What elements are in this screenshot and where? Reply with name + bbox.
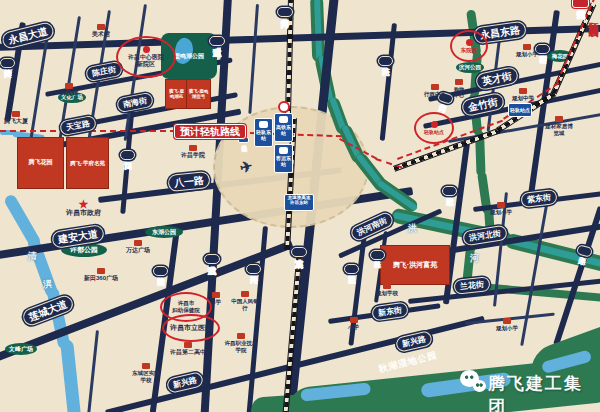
- poi-city-government: ★许昌市政府: [66, 199, 101, 217]
- project-block-honghe: 腾飞·洪河富苑: [380, 245, 450, 285]
- poi-label: 许昌市政府: [66, 209, 101, 216]
- road-label-songyuan-south: 松苑路: [370, 250, 385, 260]
- poi-label: 规划小学: [516, 51, 538, 57]
- road-label-zidong: 紫东街: [520, 189, 558, 208]
- poi-planned-middle: 规划中学: [512, 88, 534, 102]
- school-icon: [503, 318, 511, 324]
- school-icon: [523, 44, 531, 50]
- poi-label: 万达广场: [126, 247, 150, 253]
- poi-label: 东城区实验学校: [132, 370, 160, 383]
- bus-east-station-sign: 客运东站: [274, 144, 293, 173]
- sign-text: 客运东站: [276, 155, 291, 167]
- road-label-zhongwu: 忠武路: [442, 186, 457, 196]
- poi-label: 腾飞大厦: [4, 118, 28, 124]
- shili-hospital-highlight: 许昌市立医院: [162, 314, 220, 342]
- building-icon: [555, 116, 563, 122]
- poi-shopping-center: 购物中心: [452, 79, 466, 98]
- poi-label: 规划小学: [490, 209, 512, 215]
- hsr-east-station-sign: 高铁东站: [274, 113, 293, 142]
- park-wenfeng-square: 文峰广场: [5, 343, 37, 355]
- poi-label: 许昌职业技术学院: [225, 340, 258, 353]
- poi-art-museum: 美术馆: [92, 24, 110, 38]
- poi-experimental-school: 东城区实验学校: [132, 363, 160, 383]
- poi-pboc: 中国人民银行: [230, 291, 260, 311]
- lrt-east-station-sign: 轻轨东站: [254, 118, 273, 147]
- bus-icon: [279, 147, 288, 154]
- building-icon: [189, 145, 197, 151]
- wetland-park-label: 秋湖湿地公园: [377, 349, 438, 376]
- qingyi-river: [60, 339, 81, 412]
- poi-label: 行政中心: [424, 91, 446, 97]
- road-label-weiwen: 魏文路: [120, 150, 135, 160]
- poi-no2-high-school: 许昌第二高中: [170, 342, 206, 356]
- expressway-entry-sign: 京港澳高速 许昌东站: [284, 194, 314, 211]
- lrt-stop-highlight: 轻轨站点: [414, 112, 454, 144]
- building-icon: [431, 84, 439, 90]
- brand-watermark: 腾飞建工集团: [488, 372, 600, 412]
- hospital-icon: [466, 39, 473, 46]
- poi-xintian360: 新田360广场: [84, 268, 118, 282]
- poi-label: 购物中心: [454, 86, 464, 98]
- building-icon: [134, 240, 142, 246]
- poi-xuchang-university: 许昌学院: [181, 145, 205, 159]
- poi-wanda-plaza: 万达广场: [126, 240, 150, 254]
- city-map-canvas: 鹿鸣湖公园 许都公园 东湖公园 文化广场 文峰广场 滨河公园 梅花园 秋湖湿地公…: [0, 0, 600, 412]
- road-label-jinggangao: 京港澳高速: [291, 247, 307, 257]
- poi-admin-center: 行政中心: [424, 84, 446, 98]
- school-icon: [142, 363, 150, 369]
- project-block-luming-a: 腾飞·鹿鸣湖苑: [165, 79, 188, 109]
- school-icon: [519, 88, 527, 94]
- building-icon: [97, 268, 105, 274]
- river-label-char: 潩: [43, 278, 52, 291]
- highlight-text: 许昌市立医院: [170, 324, 212, 333]
- poi-science-hall: 科技馆: [60, 83, 78, 97]
- minor-road: [87, 330, 99, 412]
- light-rail-banner-side: 预计轻轨路线: [586, 14, 600, 20]
- project-block-luming-b: 腾飞·鹿鸣湖壹号: [186, 79, 211, 109]
- road-label-yulan: 玉兰路: [344, 264, 359, 274]
- poi-label: 规划中学: [512, 95, 534, 101]
- metro-icon: [259, 121, 268, 128]
- road-label-songyuan-north: 松苑路: [378, 56, 393, 66]
- school-icon: [237, 333, 245, 339]
- sign-text: 许昌东站: [285, 200, 313, 205]
- road-label-wenfeng: 文峰路: [0, 58, 15, 68]
- building-icon: [65, 83, 73, 89]
- poi-planned-primary-2: 规划小学: [490, 202, 512, 216]
- park-label: 鹿鸣湖公园: [174, 52, 204, 61]
- poi-expo-city: 建材家居博览城: [544, 116, 574, 136]
- river-label-char: 洪: [408, 222, 417, 235]
- school-icon: [383, 283, 391, 289]
- hsr-marker-icon: [278, 101, 290, 113]
- station-icon: [431, 121, 438, 128]
- school-icon: [497, 202, 505, 208]
- train-icon: [279, 116, 288, 123]
- poi-label: 新田360广场: [84, 275, 118, 281]
- road-label-xuzhou: 许州路: [246, 264, 261, 274]
- poi-label: 许昌学院: [181, 152, 205, 158]
- road-label-xinxing-east: 新兴路: [395, 330, 433, 353]
- poi-label: 小学: [348, 324, 359, 330]
- center-hospital-highlight: 许昌中心医院 新院区: [116, 36, 176, 78]
- road-label-xueyuan: 学院路: [153, 266, 168, 276]
- highlight-text: 轻轨站点: [424, 129, 444, 135]
- project-block-xuefu: 腾飞·学府名苑: [66, 137, 109, 189]
- highlight-text: 新院区: [137, 61, 155, 69]
- wechat-icon: [473, 380, 486, 392]
- poi-planned-school: 规划学校: [376, 283, 398, 297]
- light-rail-banner: 预计轻轨路线: [174, 124, 246, 139]
- road-label-weiwu-south: 魏武大道: [204, 254, 220, 264]
- highlight-text: 许昌中心医院: [128, 54, 164, 62]
- rail-label-zhengzhou-north: 郑州方向: [277, 7, 293, 17]
- poi-label: 科技馆: [60, 90, 78, 96]
- sign-text: 轻轨东站: [256, 129, 271, 141]
- poi-primary-school-b: 小学: [348, 317, 359, 331]
- bank-icon: [241, 291, 249, 297]
- to-hsr-north-banner: 至许昌高铁北站: [572, 0, 589, 8]
- road-nanhai: [78, 92, 238, 128]
- star-icon: ★: [66, 199, 101, 209]
- park-binhe: 滨河公园: [456, 62, 484, 73]
- river-label-char: 河: [470, 252, 479, 265]
- school-icon: [212, 292, 220, 298]
- lrt-stop-sign: 轻轨站点: [508, 103, 532, 117]
- highlight-text: 东院区: [461, 47, 478, 54]
- school-icon: [350, 317, 358, 323]
- highlight-text: 妇幼保健院: [172, 307, 200, 314]
- hospital-icon: [143, 46, 150, 53]
- poi-label: 建材家居博览城: [545, 123, 573, 136]
- poi-planned-primary-3: 规划小学: [496, 318, 518, 332]
- project-block-huayuan: 腾飞花园: [17, 137, 64, 189]
- building-icon: [97, 24, 105, 30]
- poi-tengfei-tower: 腾飞大厦: [4, 111, 28, 125]
- sign-text: 高铁东站: [276, 124, 291, 136]
- poi-label: 美术馆: [92, 31, 110, 37]
- poi-planned-primary-1: 规划小学: [516, 44, 538, 58]
- east-branch-highlight: 东院区: [450, 30, 488, 62]
- road-label-weiwu-north: 魏武大道: [209, 36, 225, 46]
- park-donghu: 东湖公园: [145, 226, 183, 238]
- minor-road: [520, 188, 551, 346]
- poi-label: 规划学校: [376, 290, 398, 296]
- minor-road: [248, 4, 259, 114]
- poi-label: 规划小学: [496, 325, 518, 331]
- building-icon: [12, 111, 20, 117]
- poi-label: 许昌第二高中: [170, 349, 206, 355]
- road-songyuan-north: [380, 23, 397, 141]
- poi-vocational-college: 许昌职业技术学院: [224, 333, 258, 353]
- road-label-xindong: 新东街: [371, 302, 409, 322]
- poi-label: 中国人民银行: [231, 298, 259, 311]
- river-label-char: 清: [28, 250, 37, 263]
- building-icon: [455, 79, 463, 85]
- highlight-text: 许昌市: [178, 300, 195, 307]
- school-icon: [184, 342, 192, 348]
